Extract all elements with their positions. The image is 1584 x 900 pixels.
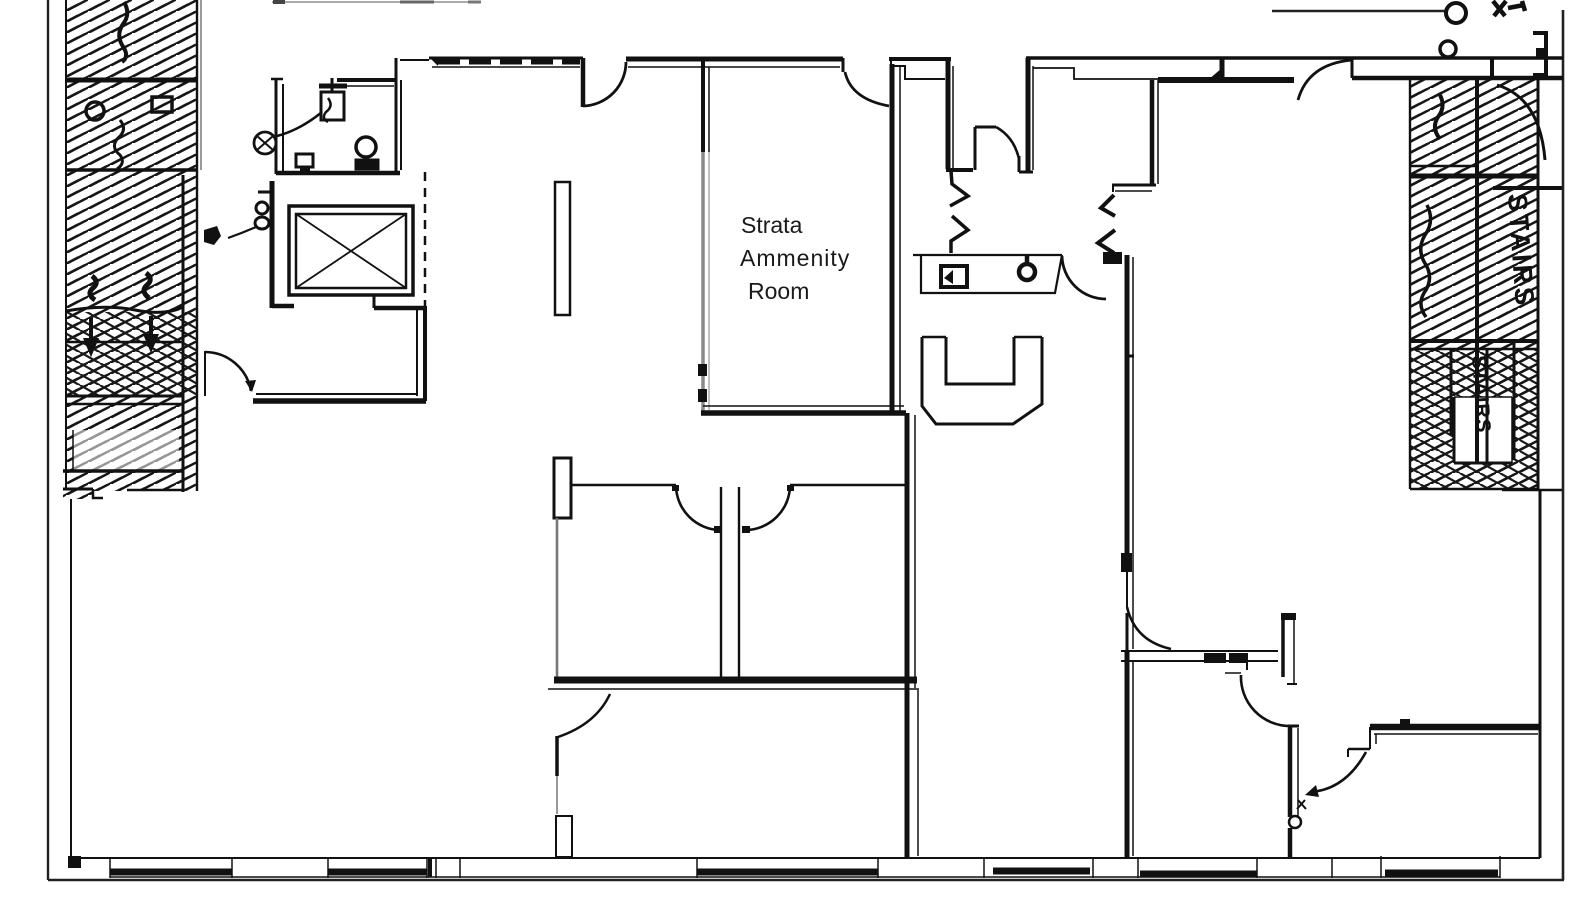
svg-text:Room: Room xyxy=(748,278,809,304)
svg-text:Strata: Strata xyxy=(741,212,803,238)
svg-text:Ammenity: Ammenity xyxy=(740,245,850,271)
